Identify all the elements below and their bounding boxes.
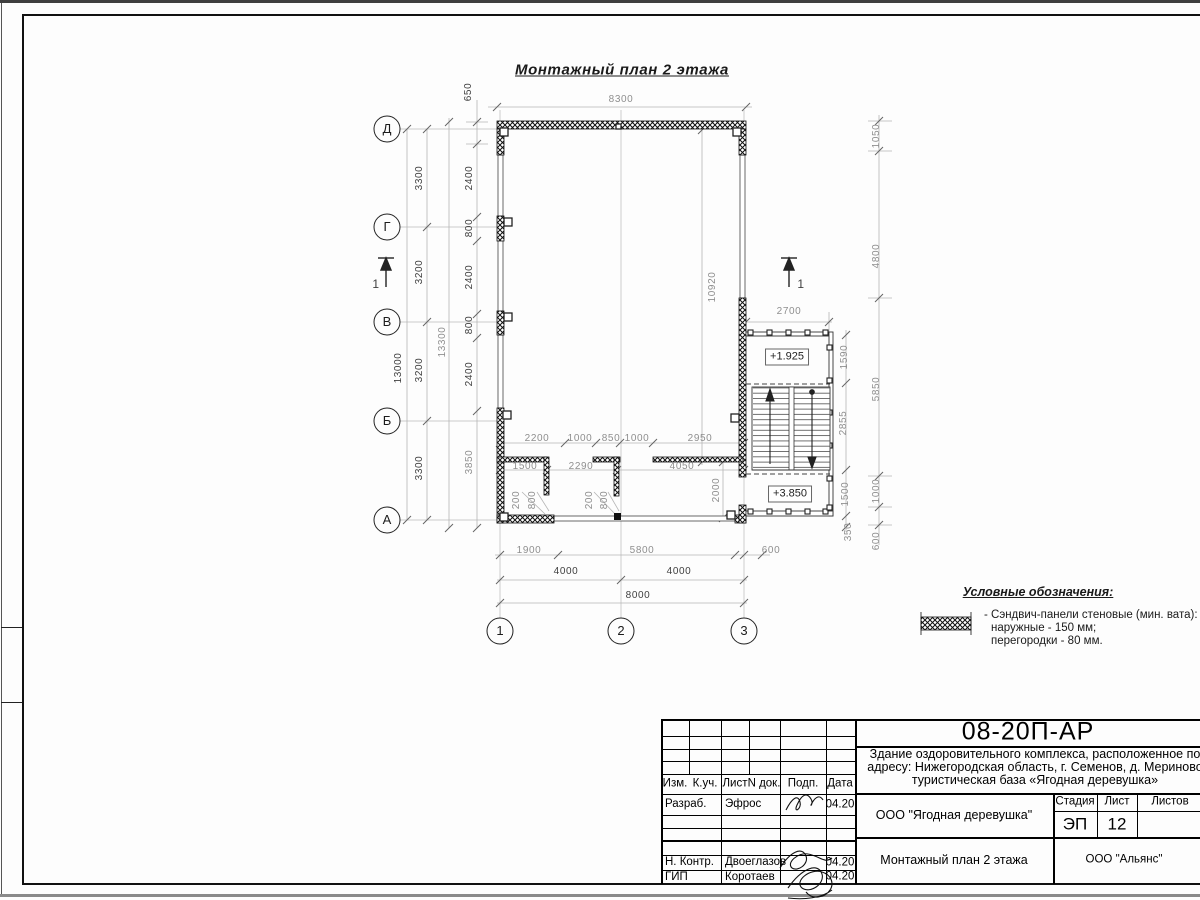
section-mark-label: 1 [797, 278, 804, 290]
axis-bubble-label: Б [383, 414, 392, 427]
tb-col-podp: Подп. [788, 778, 819, 790]
tb-col-ndok: N док. [748, 778, 781, 790]
tb-role-ncontrol: Н. Контр. [665, 857, 714, 869]
dimension-label: 10920 [708, 272, 718, 303]
tb-col-kuch: К.уч. [693, 778, 718, 790]
tb-name-gip: Коротаев [725, 872, 775, 884]
elevation-mark-lower: +3.850 [768, 486, 812, 503]
dimension-label: 800 [465, 316, 475, 335]
dimension-label: 4050 [670, 462, 695, 472]
dimension-label: 2400 [465, 265, 475, 290]
tb-project-line1: Здание оздоровительного комплекса, распо… [870, 748, 1200, 761]
axis-bubble-label: 2 [617, 624, 624, 637]
tb-role-developer: Разраб. [665, 799, 706, 811]
dimension-label: 13300 [438, 327, 448, 358]
tb-stage-label: Стадия [1055, 796, 1094, 808]
dimension-label: 2200 [525, 434, 550, 444]
dimension-label: 4000 [667, 567, 692, 577]
dimension-label: 600 [762, 546, 781, 556]
dimension-label: 3200 [415, 358, 425, 383]
legend-header: Условные обозначения: [963, 585, 1114, 599]
tb-role-gip: ГИП [665, 872, 688, 884]
dimension-label: 4800 [872, 244, 882, 269]
dimension-label: 2950 [688, 434, 713, 444]
dimension-label: 2290 [569, 462, 594, 472]
dimension-label: 2000 [712, 478, 722, 503]
dimension-label: 3300 [415, 166, 425, 191]
axis-bubble-label: 3 [740, 624, 747, 637]
dimension-label: 350 [844, 523, 854, 542]
dimension-label: 8000 [626, 591, 651, 601]
legend-item: - Сэндвич-панели стеновые (мин. вата): [984, 610, 1198, 622]
tb-organization: ООО "Ягодная деревушка" [876, 809, 1032, 822]
dimension-label: 800 [528, 491, 538, 510]
dimension-label: 13000 [394, 353, 404, 384]
tb-list-label: Лист [1105, 796, 1130, 808]
dimension-label: 1000 [872, 479, 882, 504]
dimension-label: 1000 [568, 434, 593, 444]
tb-stage-value: ЭП [1063, 816, 1087, 833]
tb-project-line2: адресу: Нижегородская область, г. Семено… [867, 761, 1200, 774]
tb-date: 04.20 [826, 799, 855, 811]
axis-bubble-label: В [383, 315, 392, 328]
section-mark-label: 1 [372, 278, 379, 290]
axis-bubble-label: Д [383, 122, 392, 135]
tb-contractor: ООО "Альянс" [1086, 854, 1163, 866]
dimension-label: 200 [512, 491, 522, 510]
dimension-label: 200 [585, 491, 595, 510]
tb-col-izm: Изм. [663, 778, 688, 790]
tb-document-code: 08-20П-АР [962, 720, 1095, 745]
dimension-label: 3200 [415, 260, 425, 285]
dimension-label: 1900 [517, 546, 542, 556]
tb-listov-label: Листов [1151, 796, 1188, 808]
tb-date: 04.20 [826, 857, 855, 869]
dimension-label: 5800 [630, 546, 655, 556]
dimension-label: 1590 [840, 345, 850, 370]
legend-item-line2: наружные - 150 мм; [991, 623, 1096, 635]
dimension-label: 1000 [625, 434, 650, 444]
dimension-label: 2855 [839, 411, 849, 436]
axis-bubble-label: Г [383, 220, 390, 233]
tb-list-value: 12 [1108, 816, 1127, 833]
dimension-label: 800 [600, 491, 610, 510]
dimension-label: 3850 [465, 450, 475, 475]
tb-col-data: Дата [827, 778, 852, 790]
tb-col-list: Лист [723, 778, 748, 790]
dimension-label: 3300 [415, 456, 425, 481]
dimension-label: 4000 [554, 567, 579, 577]
elevation-mark-upper: +1.925 [765, 349, 809, 366]
dimension-label: 600 [872, 532, 882, 551]
dimension-label: 2400 [465, 362, 475, 387]
tb-sheet-title: Монтажный план 2 этажа [880, 854, 1027, 867]
legend-item-line3: перегородки - 80 мм. [991, 636, 1103, 648]
dimension-label: 5850 [872, 377, 882, 402]
dimension-label: 1050 [872, 124, 882, 149]
tb-date: 04.20 [826, 871, 855, 883]
axis-bubble-label: А [383, 513, 392, 526]
dimension-label: 2700 [777, 307, 802, 317]
dimension-label: 8300 [609, 95, 634, 105]
tb-name-ncontrol: Двоеглазов [725, 857, 786, 869]
tb-project-line3: туристическая база «Ягодная деревушка» [912, 774, 1158, 787]
dimension-label: 2400 [465, 166, 475, 191]
tb-name-developer: Эфрос [725, 799, 761, 811]
dimension-label: 800 [465, 219, 475, 238]
dimension-label: 650 [464, 83, 474, 102]
dimension-label: 850 [602, 434, 621, 444]
dimension-label: 1500 [841, 482, 851, 507]
axis-bubble-label: 1 [496, 624, 503, 637]
drawing-sheet: { "drawing_title": "Монтажный план 2 эта… [0, 0, 1200, 900]
dimension-label: 1500 [513, 462, 538, 472]
